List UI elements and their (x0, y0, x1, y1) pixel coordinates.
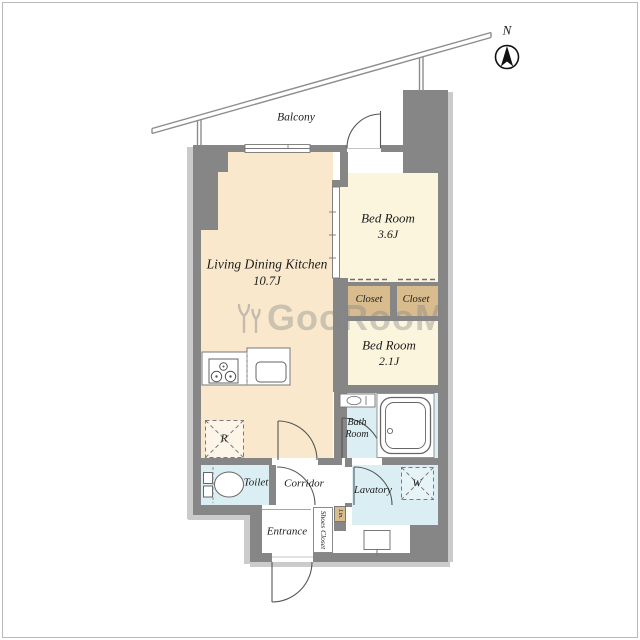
floor-plan: N Balcony Living Dining Kitchen 10.7J Be… (0, 0, 640, 640)
wall-toilet-bottom (193, 505, 262, 515)
compass-label: N (503, 24, 512, 37)
wall-bottom-b (313, 553, 448, 562)
linen-label: Lin. (337, 509, 343, 519)
watermark: GooRooM (237, 300, 446, 336)
lavatory-label: Lavatory (354, 486, 392, 497)
bedroom-a-size: 3.6J (378, 228, 398, 240)
refrigerator-label: R (221, 434, 228, 445)
shadow-right (448, 92, 453, 562)
entrance-label: Entrance (267, 527, 307, 538)
compass-icon (496, 46, 519, 69)
bath-label-1: Bath (348, 418, 367, 428)
bedroom-a-entry-strip (348, 152, 403, 173)
wall-right (438, 173, 448, 562)
wall-left (193, 145, 201, 515)
wall-corridor-lavatory-bottom (345, 503, 352, 507)
wall-closet-top (334, 282, 438, 286)
entrance-door-arc (272, 562, 312, 602)
wall-toilet-corridor (269, 465, 276, 505)
wall-bath-left (334, 392, 347, 458)
shadow-toilet-bottom (188, 515, 250, 520)
wall-ldk-bottom-a (201, 458, 272, 465)
wall-bath-bottom (382, 458, 438, 465)
bedroom-b-size: 2.1J (379, 355, 399, 367)
wall-corridor-lavatory-top (345, 458, 352, 467)
balcony-door-arc (347, 114, 381, 148)
bedroom-b-name: Bed Room (362, 339, 416, 352)
wall-ldk-bottom-b (318, 458, 342, 465)
ldk-size: 10.7J (253, 275, 280, 288)
corridor-label: Corridor (284, 479, 324, 490)
toilet-label: Toilet (244, 478, 269, 489)
wall-bedroom-b-bottom (334, 385, 438, 393)
shadow-bottom (250, 562, 450, 567)
vanity-floor (346, 525, 410, 553)
ldk-name: Living Dining Kitchen (207, 257, 328, 271)
watermark-text: GooRooM (267, 300, 446, 336)
bedroom-a-name: Bed Room (361, 212, 415, 225)
bath-label-2: Room (345, 430, 368, 440)
shoes-closet-label: Shoes Closet (319, 511, 327, 550)
balcony-label: Balcony (277, 112, 315, 124)
pillar-top-right (403, 90, 448, 173)
wall-ldk-bed-step (332, 180, 348, 187)
wall-top-b (310, 145, 347, 152)
washer-label: W (412, 479, 421, 490)
wall-top-c (381, 145, 405, 152)
wall-under-linen (334, 522, 346, 531)
watermark-logo-icon (237, 303, 263, 333)
